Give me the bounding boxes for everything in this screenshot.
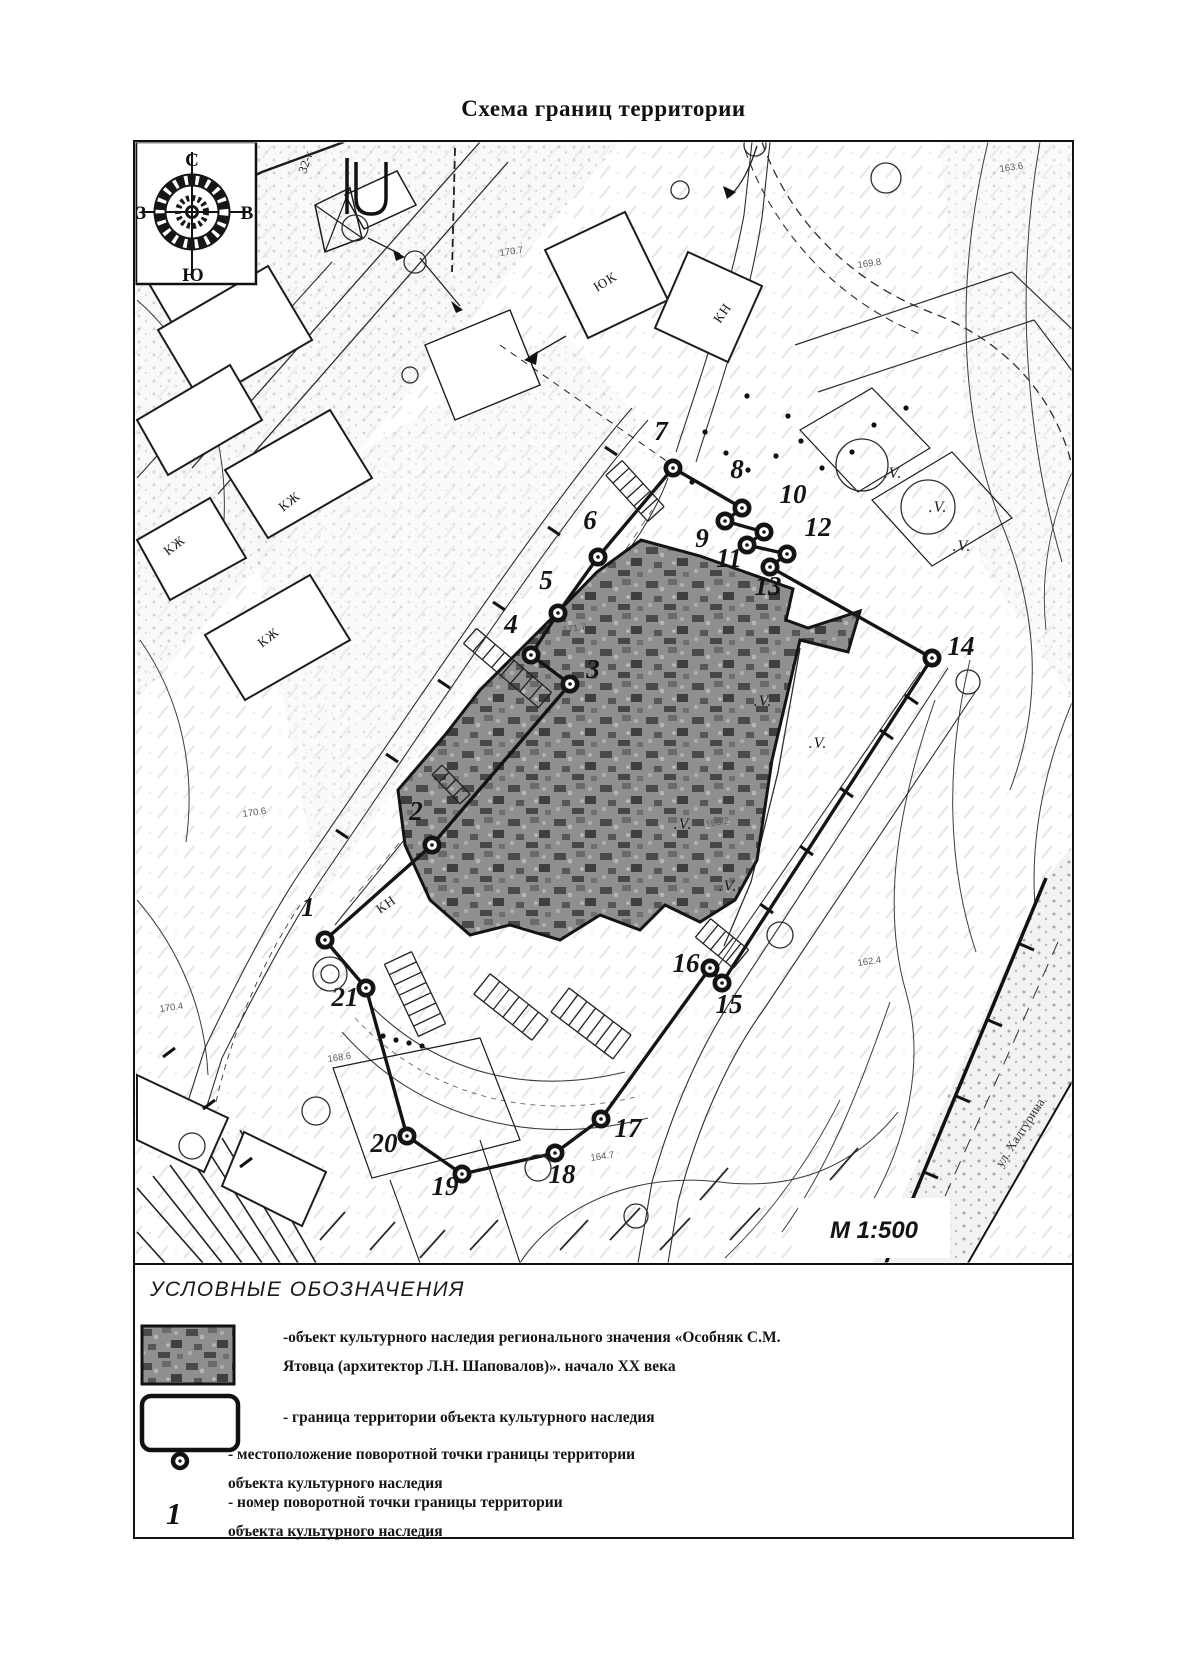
turning-point-marker-center: [720, 981, 724, 985]
boundary-point-number: 12: [805, 512, 832, 542]
legend-line: -объект культурного наследия регионально…: [283, 1324, 923, 1353]
boundary-point-number: 13: [755, 571, 782, 601]
turning-point-marker-center: [768, 565, 772, 569]
scale-label: М 1:500: [830, 1217, 919, 1244]
turning-point-marker-center: [762, 530, 766, 534]
legend-line: - номер поворотной точки границы террито…: [228, 1489, 868, 1518]
boundary-point-number: 19: [432, 1171, 460, 1201]
point-dot: [744, 393, 749, 398]
legend-item-point-number-text: - номер поворотной точки границы террито…: [228, 1489, 868, 1546]
turning-point-marker-center: [430, 843, 434, 847]
turning-point-marker-center: [745, 543, 749, 547]
boundary-point-number: 21: [331, 982, 359, 1012]
legend-symbols: 1: [142, 1326, 238, 1531]
turning-point-marker-center: [460, 1172, 464, 1176]
turning-point-marker-center: [671, 466, 675, 470]
boundary-point-number: 3: [585, 654, 600, 684]
legend-header: УСЛОВНЫЕ ОБОЗНАЧЕНИЯ: [150, 1278, 465, 1302]
boundary-point-number: 1: [301, 892, 315, 922]
turning-point-marker-center: [596, 555, 600, 559]
point-dot: [773, 453, 778, 458]
point-dot: [785, 413, 790, 418]
point-dot: [871, 422, 876, 427]
point-dot: [903, 405, 908, 410]
turning-point-marker-center: [785, 552, 789, 556]
point-dot: [798, 438, 803, 443]
legend-item-heritage-text: -объект культурного наследия регионально…: [283, 1324, 923, 1381]
boundary-point-number: 16: [673, 948, 701, 978]
boundary-point-number: 10: [780, 479, 808, 509]
vegetation-symbol: .V.: [809, 735, 828, 752]
map-legend-divider: [133, 1263, 1074, 1265]
turning-point-marker-center: [723, 519, 727, 523]
point-dot: [406, 1040, 411, 1045]
point-dot: [723, 450, 728, 455]
turning-point-marker-center: [556, 611, 560, 615]
compass-rose: С Ю В З: [136, 142, 256, 286]
boundary-point-number: 15: [716, 989, 743, 1019]
point-dot: [819, 465, 824, 470]
boundary-point-number: 6: [583, 505, 597, 535]
legend-line: объекта культурного наследия: [228, 1518, 868, 1547]
vegetation-symbol: .V.: [674, 816, 693, 833]
boundary-point-number: 18: [549, 1159, 577, 1189]
point-dot: [393, 1037, 398, 1042]
compass-north-label: С: [185, 150, 199, 171]
turning-point-marker-center: [708, 966, 712, 970]
turning-point-marker-center: [553, 1151, 557, 1155]
boundary-point-number: 20: [370, 1128, 399, 1158]
boundary-point-number: 9: [695, 523, 709, 553]
turning-point-marker-center: [740, 506, 744, 510]
legend-item-border-text: - граница территории объекта культурного…: [283, 1404, 923, 1433]
compass-west-label: З: [136, 203, 146, 224]
boundary-point-number: 4: [503, 609, 518, 639]
turning-point-marker-center: [599, 1117, 603, 1121]
turning-point-marker-center: [364, 986, 368, 990]
point-dot: [849, 449, 854, 454]
vegetation-symbol: .V.: [754, 693, 773, 710]
point-dot: [745, 467, 750, 472]
map-area: 170.7163.6169.8170.6168.6164.7162.4166.2…: [135, 134, 1073, 1264]
legend-border-swatch: [142, 1396, 238, 1450]
legend-line: - местоположение поворотной точки границ…: [228, 1441, 868, 1470]
turning-point-marker-center: [529, 653, 533, 657]
legend-heritage-swatch: [142, 1326, 234, 1384]
boundary-point-number: 17: [615, 1113, 644, 1143]
compass-east-label: В: [241, 203, 254, 224]
legend-turn-point-symbol: [173, 1454, 187, 1468]
boundary-point-number: 11: [716, 543, 742, 573]
boundary-point-number: 2: [408, 796, 423, 826]
turning-point-marker-center: [930, 656, 934, 660]
scale-box: М 1:500: [798, 1198, 950, 1258]
legend-point-number-symbol: 1: [166, 1496, 182, 1531]
vegetation-symbol: .V.: [929, 499, 948, 516]
boundary-point-number: 5: [539, 565, 553, 595]
turning-point-marker-center: [405, 1134, 409, 1138]
vegetation-symbol: .V.: [719, 878, 738, 895]
boundary-point-number: 7: [654, 416, 669, 446]
legend-line: Ятовца (архитектор Л.Н. Шаповалов)». нач…: [283, 1353, 923, 1382]
boundary-point-number: 14: [948, 631, 975, 661]
boundary-point-number: 8: [730, 454, 744, 484]
turning-point-marker-center: [323, 938, 327, 942]
point-dot: [380, 1033, 385, 1038]
point-dot: [702, 429, 707, 434]
vegetation-symbol: .V.: [953, 538, 972, 555]
turning-point-marker-center: [568, 682, 572, 686]
point-dot: [419, 1043, 424, 1048]
point-dot: [689, 479, 694, 484]
legend-line: - граница территории объекта культурного…: [283, 1404, 923, 1433]
compass-south-label: Ю: [182, 265, 203, 286]
